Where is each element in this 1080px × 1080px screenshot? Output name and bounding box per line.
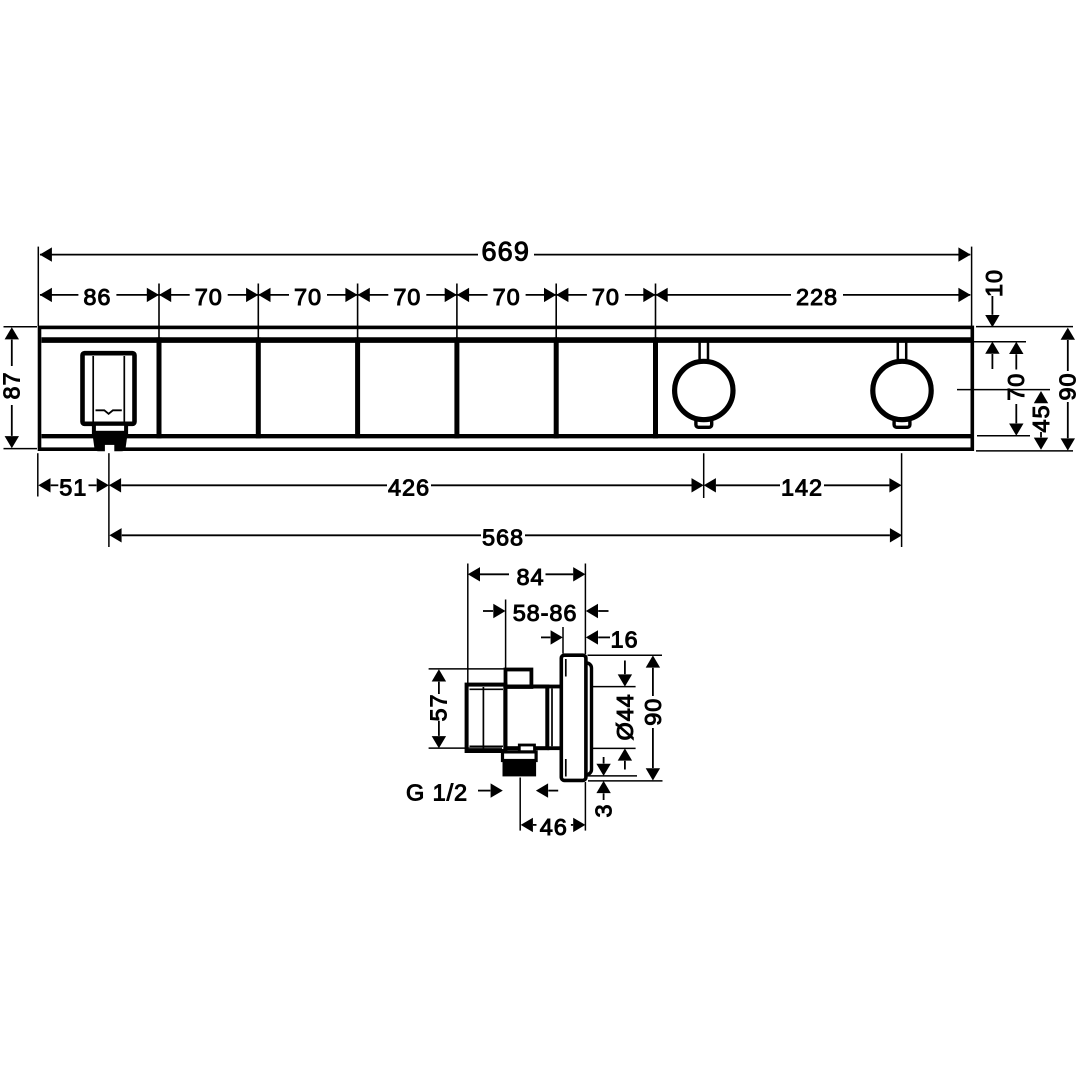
svg-text:87: 87 [0, 372, 25, 400]
svg-text:70: 70 [294, 284, 322, 310]
svg-text:426: 426 [388, 474, 430, 500]
svg-text:G 1/2: G 1/2 [406, 780, 468, 806]
svg-text:90: 90 [640, 698, 666, 726]
svg-text:16: 16 [611, 626, 639, 652]
svg-text:90: 90 [1055, 373, 1080, 401]
svg-text:10: 10 [981, 269, 1007, 297]
svg-text:86: 86 [83, 284, 111, 310]
svg-text:46: 46 [540, 814, 568, 840]
svg-text:Ø44: Ø44 [612, 693, 638, 740]
svg-text:84: 84 [517, 564, 545, 590]
svg-text:669: 669 [481, 237, 530, 267]
svg-text:70: 70 [592, 284, 620, 310]
svg-text:58-86: 58-86 [513, 600, 578, 626]
svg-text:568: 568 [482, 524, 524, 550]
svg-text:70: 70 [493, 284, 521, 310]
svg-text:70: 70 [1003, 373, 1029, 401]
svg-text:51: 51 [59, 474, 87, 500]
svg-text:228: 228 [796, 284, 838, 310]
svg-text:70: 70 [195, 284, 223, 310]
svg-text:142: 142 [781, 474, 823, 500]
svg-text:3: 3 [590, 804, 616, 818]
svg-text:57: 57 [426, 694, 452, 722]
svg-text:45: 45 [1028, 405, 1054, 433]
svg-text:70: 70 [393, 284, 421, 310]
